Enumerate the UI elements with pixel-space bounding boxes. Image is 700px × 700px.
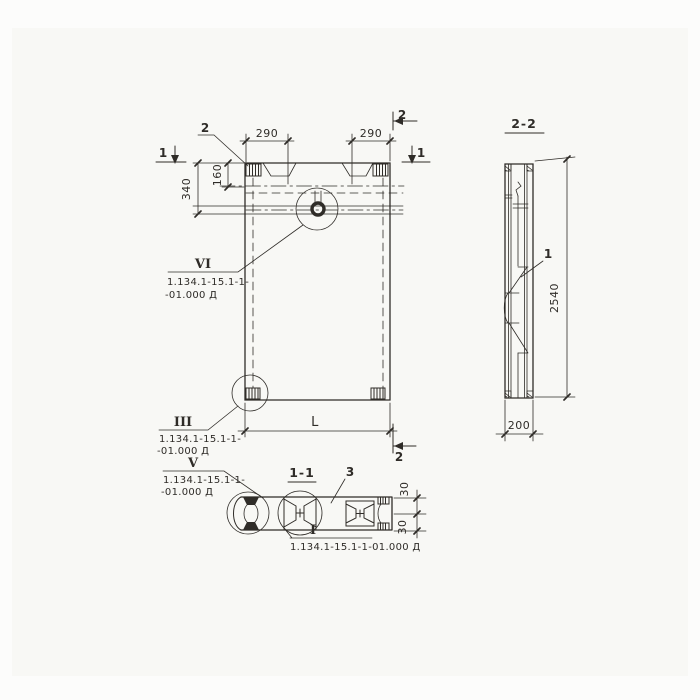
callout-iii-leader: [159, 406, 238, 430]
dim-30-top-value: 30: [398, 482, 411, 497]
section-middle-recess: [346, 501, 374, 526]
top-notch-left: [263, 163, 296, 176]
marker-1-left-arrow-icon: [171, 155, 179, 164]
callout-v-ref-line1: 1.134.1-15.1-1-: [163, 475, 245, 486]
callout-v-numeral: V: [187, 456, 199, 471]
dim-30-group: 30 30: [394, 482, 426, 539]
callout-iii-ref-line1: 1.134.1-15.1-1-: [159, 434, 241, 445]
side-outline: [505, 164, 533, 398]
marker-2-bottom-label: 2: [395, 450, 403, 464]
section-left-end-waist: [244, 505, 258, 522]
dim-2540: 2540: [535, 156, 575, 400]
dim-length: L: [238, 403, 397, 437]
side-view-2-2: 2-2 1 2540: [496, 116, 575, 441]
callout-vi-leader: [168, 225, 303, 272]
callout-v-ref-line2: -01.000 Д: [161, 487, 213, 498]
dim-290-right-value: 290: [360, 127, 383, 140]
callout-iii-ref-line2: -01.000 Д: [157, 446, 209, 457]
dim-200: 200: [496, 400, 543, 441]
side-view-title-group: 2-2: [505, 116, 544, 133]
bottom-right-hatch-block: [371, 388, 385, 399]
marker-1-right-arrow-icon: [408, 155, 416, 164]
bottom-left-detail-circle: [232, 375, 268, 411]
top-right-hatch-block: [373, 164, 388, 176]
front-view: 290 290 340 160: [156, 108, 430, 464]
detail-label-3-text: 3: [346, 465, 354, 479]
section-right-end-waist: [378, 504, 381, 523]
dim-2540-value: 2540: [548, 283, 561, 313]
detail-label-2: 2: [198, 121, 248, 166]
anchor-detail-circle: [296, 188, 338, 230]
callout-vi-ref-line1: 1.134.1-15.1-1-: [167, 277, 249, 288]
section-right-end-hatch: [378, 497, 389, 530]
section-left-end-pad-bottom: [243, 522, 259, 530]
callout-vi-ref-line2: -01.000 Д: [165, 290, 217, 301]
dim-290-left: 290: [240, 127, 294, 184]
detail-label-2-leader: [198, 135, 248, 166]
detail-label-1-text: 1: [544, 247, 552, 261]
section-marker-1-left: 1: [156, 146, 186, 164]
section-bar-left-end-arc: [234, 497, 242, 530]
dim-160: 160: [211, 160, 244, 190]
top-notch-right: [342, 163, 373, 176]
marker-2-top-label: 2: [398, 108, 406, 122]
marker-1-right-label: 1: [417, 146, 425, 160]
marker-1-left-label: 1: [159, 146, 167, 160]
section-marker-2-top: 2: [393, 108, 417, 130]
section-left-end-pad-top: [243, 497, 259, 505]
section-marker-1-right: 1: [402, 146, 430, 164]
detail-label-2-text: 2: [201, 121, 209, 135]
dim-200-value: 200: [508, 419, 531, 432]
dim-30-bottom-value: 30: [396, 520, 409, 535]
dim-2540-extensions: [535, 157, 575, 397]
callout-iii: III 1.134.1-15.1-1- -01.000 Д: [157, 406, 241, 457]
dim-340-value: 340: [180, 178, 193, 201]
section-view-1-1: 1-1 3: [161, 456, 426, 553]
dim-160-value: 160: [211, 164, 224, 187]
callout-vi: VI 1.134.1-15.1-1- -01.000 Д: [165, 225, 303, 301]
dim-length-value: L: [311, 415, 319, 430]
callout-i-numeral: I: [310, 523, 316, 538]
bottom-left-hatch-block: [246, 388, 260, 399]
marker-2-bottom-lines: [393, 424, 416, 453]
blueprint-page: 290 290 340 160: [0, 0, 700, 700]
side-break-zigzag: [516, 182, 521, 196]
detail-label-3-leader: [331, 479, 345, 503]
panel-outline: [245, 163, 390, 400]
section-1-1-title-group: 1-1: [288, 465, 316, 482]
callout-i-ref: 1.134.1-15.1-1-01.000 Д: [290, 542, 421, 553]
side-view-title: 2-2: [511, 116, 537, 131]
callout-iii-numeral: III: [174, 415, 192, 430]
section-1-1-title: 1-1: [289, 465, 315, 480]
marker-2-bottom-arrow-icon: [394, 442, 403, 450]
callout-vi-numeral: VI: [194, 257, 211, 272]
side-corner-hatches: [505, 164, 533, 398]
dim-290-left-value: 290: [256, 127, 279, 140]
lifting-anchor-icon: [312, 203, 324, 215]
section-marker-2-bottom: 2: [393, 424, 416, 464]
panel-technical-drawing: 290 290 340 160: [0, 0, 700, 700]
detail-label-1: 1: [521, 247, 552, 277]
